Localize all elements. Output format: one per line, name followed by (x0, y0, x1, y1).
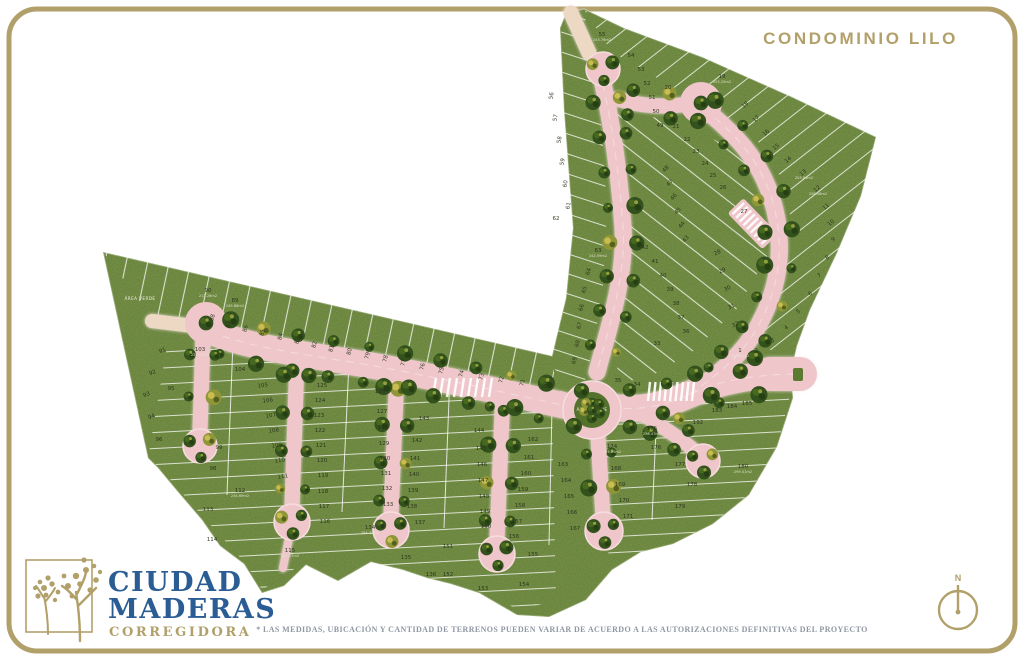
logo-line-location: CORREGIDORA (109, 625, 251, 640)
lot-number: 144 (474, 428, 485, 434)
tree-icon (714, 345, 728, 359)
tree-icon (687, 366, 703, 382)
tree-icon (301, 446, 313, 458)
tree-icon (462, 396, 476, 410)
lot-number: 133 (383, 502, 394, 508)
lot-number: 117 (319, 504, 330, 510)
lot-number: 50 (653, 109, 660, 115)
tree-icon (613, 91, 626, 104)
tree-icon (605, 55, 619, 69)
tree-icon (426, 388, 441, 403)
lot-number: 114 (207, 537, 218, 543)
lot-area-label: 284.32m2 (361, 531, 379, 535)
lot-number: 54 (628, 53, 635, 59)
lot-number: 99 (216, 445, 223, 451)
lot-area-label: 407.57m2 (281, 554, 299, 558)
tree-icon (206, 389, 222, 405)
lot-number: 22 (684, 137, 691, 143)
lot-number: 150 (481, 524, 492, 530)
lot-number: 122 (315, 428, 326, 434)
tree-icon (534, 413, 544, 423)
tree-icon (682, 424, 695, 437)
green-area-label: ÁREA VERDE (125, 296, 156, 301)
tree-icon (687, 451, 698, 462)
lot-area-label: 229.63m2 (191, 353, 209, 357)
lot-number: 49 (657, 123, 664, 129)
lot-area-label: 243.76m2 (593, 38, 611, 42)
lot-number: 163 (558, 462, 569, 468)
lot-number: 179 (675, 504, 686, 510)
lot-area-label: 162.82m2 (731, 354, 749, 358)
tree-icon (697, 466, 711, 480)
lot-number: 52 (644, 81, 651, 87)
north-compass-icon (939, 585, 977, 629)
lot-number: 25 (710, 173, 717, 179)
tree-icon (505, 477, 519, 491)
lot-number: 121 (316, 443, 327, 449)
lot-number: 170 (619, 498, 630, 504)
tree-icon (621, 108, 634, 121)
tree-icon (750, 386, 767, 403)
lot-number: 130 (380, 456, 391, 462)
lot-number: 96 (156, 437, 163, 443)
lot-number: 21 (673, 124, 680, 130)
lot-number: 148 (479, 494, 490, 500)
lot-number: 128 (378, 425, 389, 431)
lot-number: 95 (168, 386, 175, 392)
lot-number: 162 (528, 437, 539, 443)
lot-number: 27 (741, 209, 748, 215)
tree-icon (287, 527, 300, 540)
tree-icon (585, 339, 596, 350)
tree-icon (627, 274, 641, 288)
tree-icon (612, 347, 621, 356)
tree-icon (599, 269, 613, 283)
lot-number: 136 (426, 572, 437, 578)
street-1 (292, 358, 297, 507)
tree-icon (386, 535, 399, 548)
lot-number: 156 (509, 534, 520, 540)
tree-icon (598, 75, 609, 86)
tree-icon (203, 433, 216, 446)
tree-icon (195, 452, 206, 463)
lot-number: 131 (381, 471, 392, 477)
tree-icon (593, 131, 607, 145)
tree-icon (761, 150, 774, 163)
tree-icon (593, 304, 606, 317)
page: ÁREA VERDE 55243.76m254535251504919253.2… (0, 0, 1024, 660)
lot-number: 185 (742, 401, 753, 407)
tree-icon (585, 95, 600, 110)
lot-number: 153 (478, 586, 489, 592)
tree-icon (602, 235, 617, 250)
lot-number: 23 (693, 149, 700, 155)
lot-number: 140 (409, 472, 420, 478)
lot-number: 169 (615, 482, 626, 488)
lot-area-label: 165.80m2 (603, 450, 621, 454)
tree-icon (300, 484, 310, 494)
tree-icon (301, 368, 316, 383)
tree-icon (184, 391, 194, 401)
tree-icon (777, 301, 788, 312)
tree-icon (756, 257, 773, 274)
lot-area-label: 213.28m2 (199, 294, 217, 298)
lot-number: 123 (314, 413, 325, 419)
lot-number: 113 (203, 507, 214, 513)
tree-icon (623, 420, 637, 434)
logo-trees-icon (26, 557, 102, 641)
tree-icon (704, 362, 714, 372)
tree-icon (718, 139, 728, 149)
tree-icon (506, 370, 516, 380)
lot-number: 120 (317, 458, 328, 464)
lot-number: 178 (687, 482, 698, 488)
tree-icon (733, 364, 748, 379)
lot-area-label: 256.06m2 (809, 192, 827, 196)
lot-number: 168 (611, 466, 622, 472)
ciudad-maderas-logo: CIUDAD MADERAS CORREGIDORA (26, 557, 276, 641)
lot-number: 118 (318, 489, 329, 495)
tree-icon (587, 405, 598, 416)
lot-number: 155 (528, 552, 539, 558)
lot-number: 127 (377, 409, 388, 415)
lot-number: 154 (519, 582, 530, 588)
lot-number: 20 (665, 85, 672, 91)
tree-icon (296, 510, 307, 521)
lot-number: 34 (634, 382, 641, 388)
tree-icon (358, 377, 369, 388)
tree-icon (626, 164, 637, 175)
tree-icon (707, 449, 719, 461)
lot-number: 59 (559, 157, 566, 165)
lot-number: 164 (561, 478, 572, 484)
lot-number: 160 (521, 471, 532, 477)
tree-icon (401, 379, 417, 395)
lot-number: 126 (375, 389, 386, 395)
tree-icon (626, 197, 643, 214)
lot-number: 57 (552, 113, 559, 121)
tree-icon (587, 519, 601, 533)
tree-icon (661, 378, 673, 390)
lot-number: 61 (565, 202, 572, 210)
lot-number: 166 (567, 510, 578, 516)
tree-icon (275, 511, 288, 524)
tree-icon (707, 92, 724, 109)
tree-icon (492, 560, 503, 571)
tree-icon (470, 362, 483, 375)
lot-number: 151 (443, 544, 454, 550)
tree-icon (485, 402, 495, 412)
lot-number: 135 (401, 555, 412, 561)
tree-icon (397, 345, 413, 361)
tree-icon (394, 517, 407, 530)
compass-north-label: N (955, 573, 962, 583)
lot-area-label: 242.59m2 (589, 254, 607, 258)
lot-number: 104 (235, 367, 246, 373)
tree-icon (275, 484, 285, 494)
tree-icon (656, 406, 670, 420)
tree-icon (694, 96, 709, 111)
tree-icon (752, 194, 765, 207)
lot-number: 161 (524, 455, 535, 461)
lot-number: 157 (512, 519, 523, 525)
lot-number: 177 (675, 462, 686, 468)
tree-icon (506, 399, 523, 416)
lot-number: 33 (654, 341, 661, 347)
tree-icon (580, 479, 597, 496)
tree-icon (248, 356, 264, 372)
lot-number: 129 (379, 441, 390, 447)
tree-icon (433, 353, 447, 367)
tree-icon (776, 184, 790, 198)
lot-number: 184 (727, 404, 738, 410)
lot-number: 132 (382, 486, 393, 492)
tree-icon (209, 350, 220, 361)
lot-number: 125 (317, 383, 328, 389)
lot-number: 159 (518, 487, 529, 493)
tree-icon (275, 405, 289, 419)
lot-number: 36 (683, 329, 690, 335)
tree-icon (690, 113, 706, 129)
tree-icon (400, 418, 414, 432)
tree-icon (620, 311, 632, 323)
lot-number: 171 (623, 514, 634, 520)
tree-icon (276, 367, 292, 383)
footer-disclaimer: * LAS MEDIDAS, UBICACIÓN Y CANTIDAD DE T… (256, 624, 868, 634)
tree-icon (603, 203, 613, 213)
logo-line-maderas: MADERAS (108, 594, 276, 625)
tree-icon (566, 418, 582, 434)
tree-icon (375, 520, 386, 531)
tree-icon (581, 449, 592, 460)
lot-number: 60 (562, 179, 569, 187)
condominio-lilo-site-plan: ÁREA VERDE 55243.76m254535251504919253.2… (0, 0, 1024, 660)
tree-icon (703, 387, 720, 404)
tree-icon (627, 83, 641, 97)
lot-number: 26 (720, 185, 727, 191)
tree-icon (620, 127, 633, 140)
lot-number: 149 (480, 509, 491, 515)
tree-icon (738, 165, 750, 177)
lot-number: 142 (412, 438, 423, 444)
lot-number: 141 (410, 456, 421, 462)
tree-icon (587, 58, 599, 70)
lot-number: 40 (660, 273, 667, 279)
lot-number: 42 (642, 245, 649, 251)
lot-number: 137 (415, 520, 426, 526)
lot-area-label: 253.25m2 (713, 80, 731, 84)
tree-icon (673, 412, 685, 424)
lot-number: 176 (651, 445, 662, 451)
tree-icon (506, 438, 521, 453)
lot-number: 139 (408, 488, 419, 494)
lot-area-label: 234.69m2 (231, 494, 249, 498)
tree-icon (574, 383, 589, 398)
lot-number: 51 (649, 95, 656, 101)
lot-number: 62 (553, 216, 560, 222)
tree-icon (737, 120, 748, 131)
lot-number: 165 (564, 494, 575, 500)
tree-icon (667, 443, 681, 457)
tree-icon (608, 519, 619, 530)
lot-number: 146 (477, 462, 488, 468)
lot-number: 39 (667, 287, 674, 293)
tree-icon (751, 291, 762, 302)
lot-number: 152 (443, 572, 454, 578)
lot-area-label: 203.84m2 (795, 176, 813, 180)
lot-number: 124 (315, 398, 326, 404)
lot-number: 119 (318, 473, 329, 479)
lot-number: 145 (476, 446, 487, 452)
lot-number: 147 (478, 478, 489, 484)
tree-icon (183, 435, 196, 448)
tree-icon (757, 225, 772, 240)
lot-number: 53 (638, 67, 645, 73)
tree-icon (364, 342, 374, 352)
lot-number: 58 (556, 135, 563, 143)
lot-number: 138 (407, 504, 418, 510)
tree-icon (480, 543, 493, 556)
gate-median (793, 368, 803, 381)
tree-icon (598, 167, 610, 179)
lot-number: 56 (548, 91, 555, 99)
lot-number: 38 (673, 301, 680, 307)
lot-number: 41 (652, 259, 659, 265)
lot-number: 98 (210, 466, 217, 472)
lot-area-label: 256.47m2 (643, 432, 661, 436)
lot-number: 37 (678, 315, 685, 321)
lot-number: 35 (615, 378, 622, 384)
lot-number: 24 (702, 161, 709, 167)
tree-icon (301, 407, 315, 421)
tree-icon (784, 221, 800, 237)
tree-icon (499, 540, 513, 554)
lot-number: 158 (515, 503, 526, 509)
lot-number: 192 (693, 420, 704, 426)
lot-area-label: 245.86m2 (226, 304, 244, 308)
lot-number: 167 (570, 526, 581, 532)
lot-number: 116 (320, 519, 331, 525)
lot-number: 143 (419, 416, 430, 422)
lot-area-label: 299.01m2 (734, 470, 752, 474)
tree-icon (322, 370, 335, 383)
tree-icon (786, 263, 796, 273)
page-title: CONDOMINIO LILO (763, 29, 958, 48)
tree-icon (599, 536, 612, 549)
lot-number: 183 (712, 408, 723, 414)
